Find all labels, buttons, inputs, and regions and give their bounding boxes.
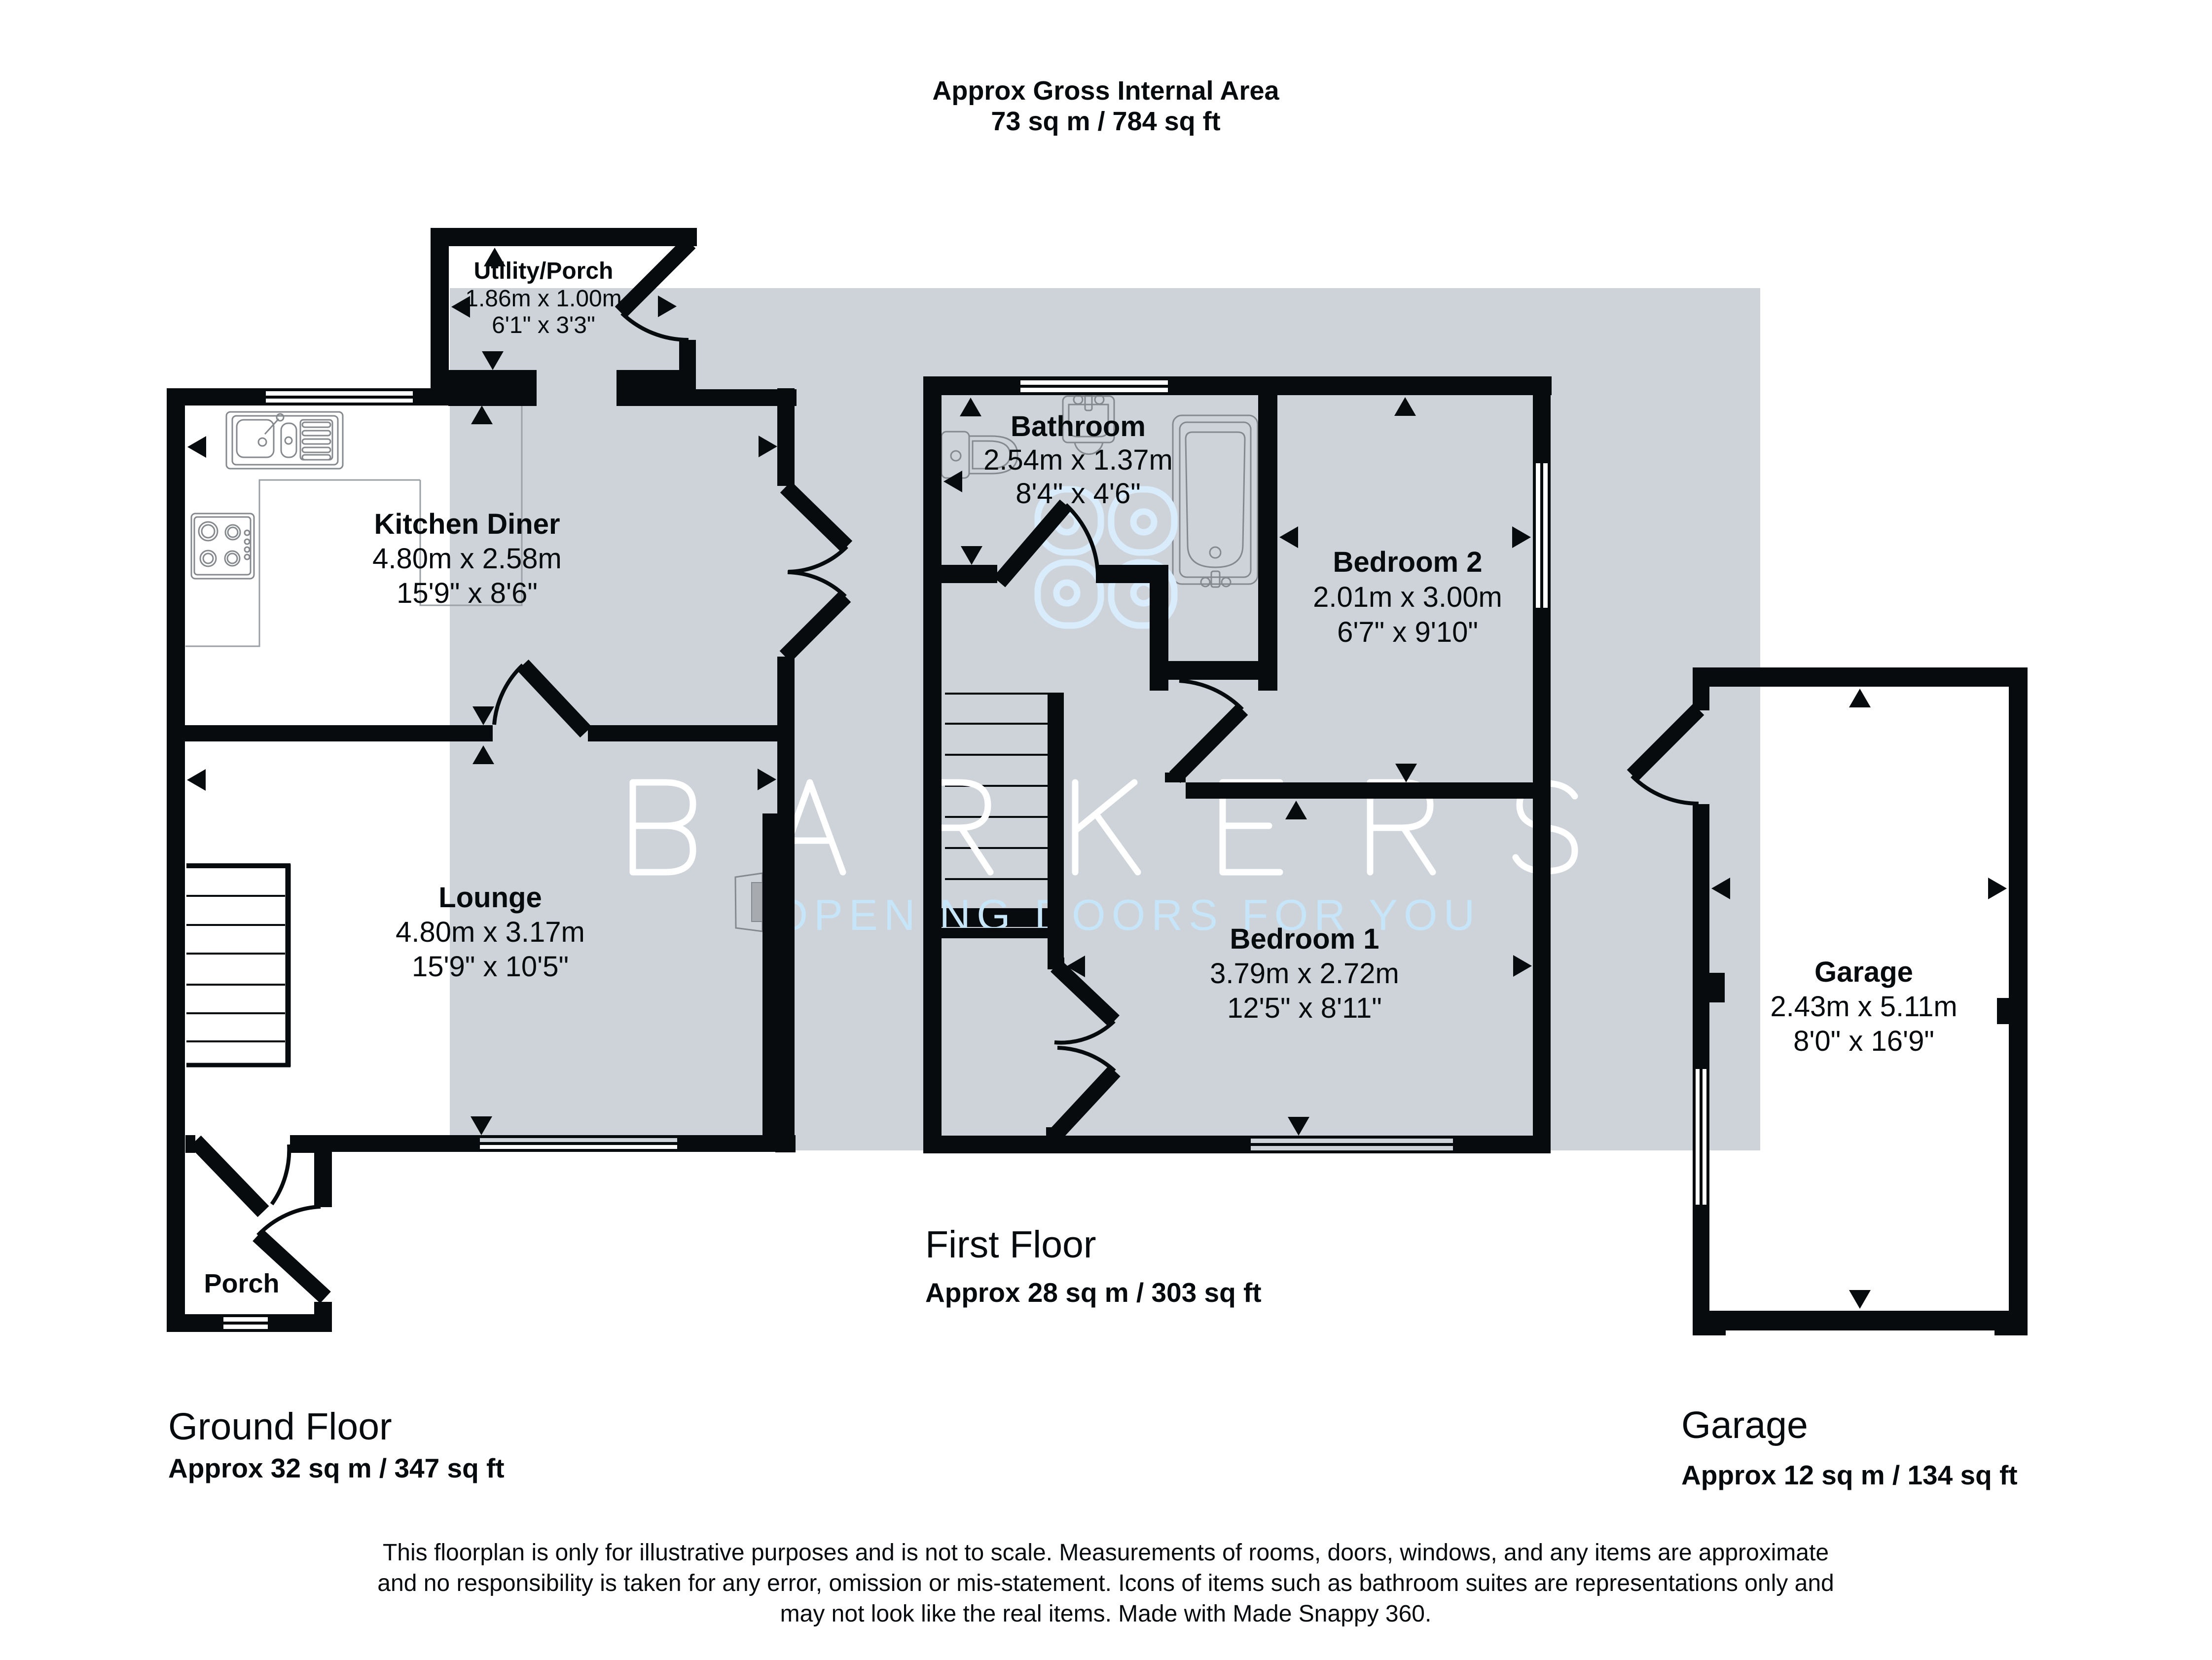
svg-text:1.86m x 1.00m: 1.86m x 1.00m xyxy=(465,286,621,312)
svg-text:2.43m x 5.11m: 2.43m x 5.11m xyxy=(1770,991,1957,1023)
svg-text:Bedroom 2: Bedroom 2 xyxy=(1333,546,1483,578)
svg-text:may not look like the real ite: may not look like the real items. Made w… xyxy=(780,1601,1432,1627)
svg-text:8'4" x 4'6": 8'4" x 4'6" xyxy=(1015,478,1141,510)
svg-text:2.01m x 3.00m: 2.01m x 3.00m xyxy=(1313,581,1502,613)
svg-text:2.54m x 1.37m: 2.54m x 1.37m xyxy=(983,444,1173,476)
svg-text:Bathroom: Bathroom xyxy=(1011,410,1146,443)
svg-text:4.80m x 2.58m: 4.80m x 2.58m xyxy=(372,543,562,575)
svg-text:Garage: Garage xyxy=(1681,1404,1808,1446)
svg-text:8'0" x 16'9": 8'0" x 16'9" xyxy=(1793,1025,1934,1057)
svg-text:Ground Floor: Ground Floor xyxy=(168,1405,392,1448)
svg-text:Lounge: Lounge xyxy=(438,882,542,914)
svg-text:12'5" x 8'11": 12'5" x 8'11" xyxy=(1227,992,1382,1024)
svg-text:6'7" x 9'10": 6'7" x 9'10" xyxy=(1337,616,1478,648)
svg-text:This floorplan is only for ill: This floorplan is only for illustrative … xyxy=(383,1540,1829,1566)
svg-text:Porch: Porch xyxy=(204,1269,279,1298)
svg-text:Approx Gross Internal Area: Approx Gross Internal Area xyxy=(932,76,1279,106)
svg-text:15'9" x 10'5": 15'9" x 10'5" xyxy=(412,951,569,983)
svg-text:and no responsibility is taken: and no responsibility is taken for any e… xyxy=(377,1570,1834,1596)
svg-text:Approx 28 sq m / 303 sq ft: Approx 28 sq m / 303 sq ft xyxy=(925,1277,1262,1308)
svg-text:Garage: Garage xyxy=(1814,956,1913,988)
svg-text:73 sq m / 784 sq ft: 73 sq m / 784 sq ft xyxy=(991,107,1220,136)
svg-text:Utility/Porch: Utility/Porch xyxy=(474,258,614,284)
svg-text:Approx 12 sq m / 134 sq ft: Approx 12 sq m / 134 sq ft xyxy=(1681,1460,2018,1490)
svg-text:Approx 32 sq m / 347 sq ft: Approx 32 sq m / 347 sq ft xyxy=(168,1453,505,1483)
svg-text:First Floor: First Floor xyxy=(925,1223,1096,1266)
svg-text:Bedroom 1: Bedroom 1 xyxy=(1230,923,1379,955)
svg-text:15'9" x 8'6": 15'9" x 8'6" xyxy=(397,577,538,609)
svg-text:Kitchen Diner: Kitchen Diner xyxy=(374,508,560,540)
svg-text:4.80m x 3.17m: 4.80m x 3.17m xyxy=(396,916,585,948)
svg-text:3.79m x 2.72m: 3.79m x 2.72m xyxy=(1210,958,1399,990)
svg-text:6'1" x 3'3": 6'1" x 3'3" xyxy=(492,312,595,338)
